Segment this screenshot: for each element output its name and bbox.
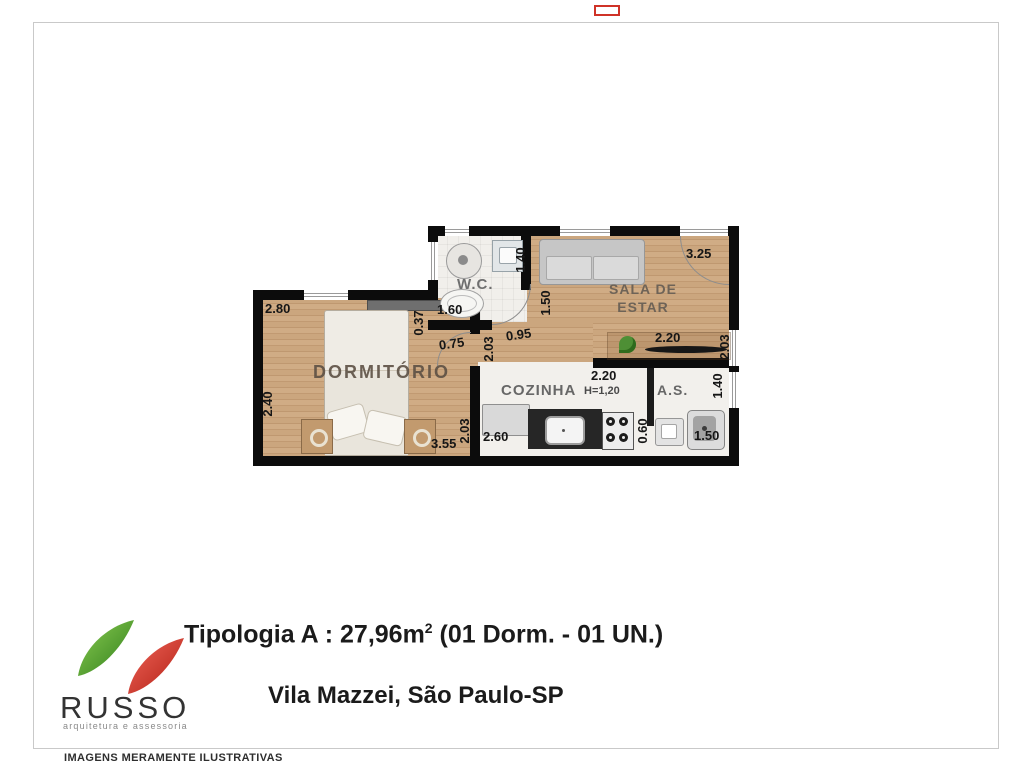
burner-icon [606, 433, 615, 442]
dim-pass-203: 2.03 [482, 333, 496, 365]
kitchen-counter [528, 409, 602, 449]
dorm-window [304, 290, 348, 300]
dim-as-tank: 1.50 [694, 429, 719, 443]
sala-label-line2: ESTAR [593, 298, 693, 316]
burner-icon [606, 417, 615, 426]
floor-plan: DORMITÓRIO W.C. SALA DE ESTAR COZINHA H=… [253, 226, 739, 468]
red-marker [594, 5, 620, 16]
dim-dorm-top: 2.80 [265, 302, 290, 316]
sala-window [560, 226, 610, 236]
dim-dorm-right: 2.03 [458, 415, 472, 447]
wall-wc-bottom [428, 320, 492, 330]
bed [324, 310, 409, 456]
dim-sala-right: 2.03 [718, 331, 732, 363]
as-sink [655, 418, 684, 446]
title-superscript: 2 [425, 620, 433, 636]
logo-tagline: arquitetura e assessoria [63, 721, 188, 731]
page: DORMITÓRIO W.C. SALA DE ESTAR COZINHA H=… [0, 0, 1024, 768]
tv-rack [645, 346, 727, 353]
dim-as-div: 0.60 [636, 415, 650, 447]
sala-label-line1: SALA DE [593, 280, 693, 298]
title-suffix: (01 Dorm. - 01 UN.) [433, 620, 664, 648]
wall-bottom [253, 456, 739, 466]
as-basin [661, 424, 677, 439]
dim-wc-right: 1.40 [514, 244, 528, 276]
nightstand-ring [310, 429, 328, 447]
nightstand-ring [413, 429, 431, 447]
plant-icon [619, 336, 636, 353]
logo-leaf-red [128, 638, 184, 694]
sofa-cushion [546, 256, 592, 280]
dim-dorm-bottom: 3.55 [431, 437, 456, 451]
dim-pass-037: 0.37 [412, 307, 426, 339]
sink-drain [562, 429, 565, 432]
location-text: Vila Mazzei, São Paulo-SP [268, 682, 564, 710]
cozinha-label: COZINHA [501, 382, 576, 399]
dim-sala-left: 1.50 [539, 287, 553, 319]
stove [602, 412, 634, 450]
nightstand-left [301, 419, 333, 454]
burner-icon [619, 433, 628, 442]
dim-coz-fridge: 2.60 [483, 430, 508, 444]
sofa-cushion [593, 256, 639, 280]
logo-leaf-green [78, 620, 134, 676]
burner-icon [619, 417, 628, 426]
russo-logo-icon [72, 618, 192, 694]
dim-as-right: 1.40 [711, 370, 725, 402]
entry-door-opening [680, 226, 728, 236]
shower-head-icon [458, 255, 468, 265]
cozinha-height-label: H=1,20 [584, 385, 620, 397]
sofa [539, 239, 645, 285]
shower [446, 243, 482, 279]
dim-sala-top: 3.25 [686, 247, 711, 261]
dormitorio-label: DORMITÓRIO [313, 362, 450, 383]
typology-title: Tipologia A : 27,96m2 (01 Dorm. - 01 UN.… [184, 620, 663, 649]
wc-label: W.C. [457, 276, 494, 293]
dim-coz-top: 2.20 [591, 369, 616, 383]
kitchen-sink [545, 416, 585, 445]
dim-dorm-left: 2.40 [261, 388, 275, 420]
disclaimer-text: IMAGENS MERAMENTE ILUSTRATIVAS [64, 752, 283, 764]
as-window [729, 372, 739, 408]
sala-label: SALA DE ESTAR [593, 280, 693, 316]
dim-sala-rack: 2.20 [655, 331, 680, 345]
as-label: A.S. [657, 382, 688, 398]
wc-top-window [445, 226, 469, 236]
wc-side-window [428, 242, 438, 280]
wall-dorm-left [253, 290, 263, 466]
title-prefix: Tipologia A : 27,96m [184, 620, 425, 648]
dim-wc-bottom: 1.60 [437, 303, 462, 317]
